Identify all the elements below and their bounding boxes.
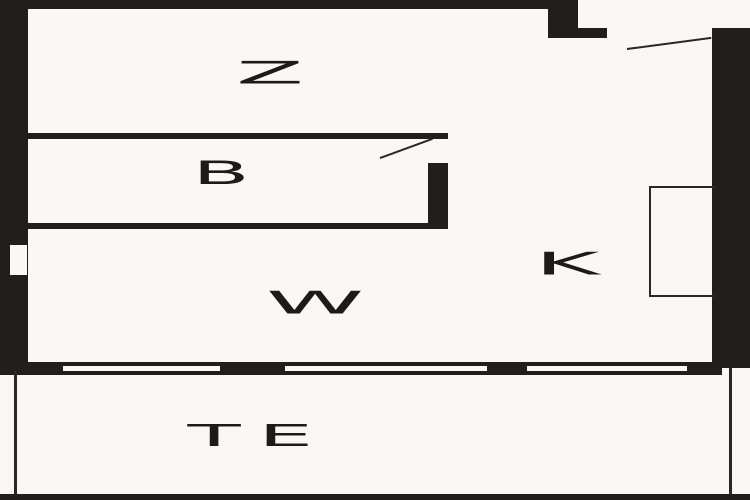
bottom-window-2 (285, 362, 487, 375)
room-label-b: B (192, 157, 249, 189)
left-exterior-wall (0, 0, 28, 370)
bottom-window-1 (63, 362, 220, 375)
bottom-wall-segment (687, 362, 722, 375)
floorplan: Z B W K TE (0, 0, 750, 500)
top-wall-step (548, 0, 578, 38)
room-label-z: Z (236, 59, 304, 90)
terrace-left-boundary (14, 370, 17, 495)
terrace-right-boundary (729, 368, 732, 495)
bottom-wall-segment (487, 362, 527, 375)
room-b-top-wall (28, 133, 448, 139)
bottom-wall-segment (0, 362, 63, 375)
bottom-window-3 (527, 362, 687, 375)
left-wall-window (10, 245, 27, 275)
room-label-w: W (266, 289, 364, 320)
right-exterior-wall (712, 28, 750, 368)
closet-outline (649, 186, 716, 297)
room-b-right-wall (428, 163, 448, 229)
entrance-door-swing-line (627, 37, 712, 50)
room-label-te: TE (188, 422, 331, 452)
room-b-bottom-wall (28, 223, 448, 229)
entry-wall-stub (578, 28, 607, 38)
room-b-door-swing-line (380, 138, 433, 159)
top-exterior-wall (28, 0, 548, 9)
bottom-wall-segment (220, 362, 285, 375)
terrace-bottom-edge (0, 494, 750, 500)
room-label-k: K (534, 250, 599, 281)
